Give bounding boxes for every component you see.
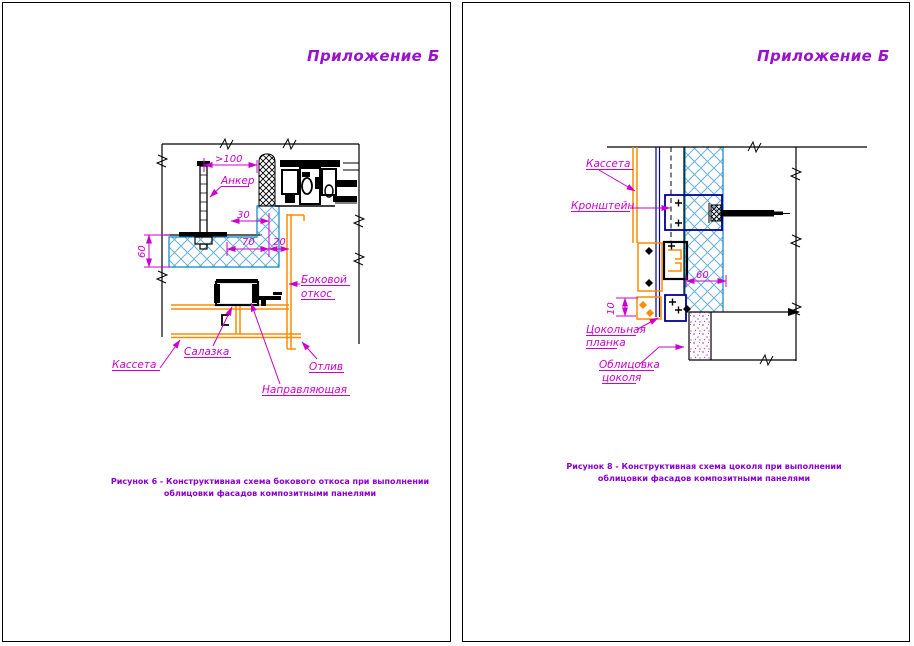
label-bracket: Кронштейн [571, 200, 634, 212]
dim-100: >100 [215, 154, 242, 165]
label-plinth-cladding-1: Облицовка [599, 359, 660, 371]
bracket-assembly [214, 279, 282, 325]
detail-drawing-side-reveal: >100 30 70 20 60 Анкер Боковой откос Кас… [104, 129, 406, 421]
label-rail: Направляющая [262, 384, 347, 396]
dim-60: 60 [137, 245, 148, 258]
label-slide: Салазка [184, 346, 229, 358]
dim-70: 70 [242, 237, 255, 248]
appendix-title-left: Приложение Б [307, 47, 440, 65]
figure-caption-right: Рисунок 8 - Конструктивная схема цоколя … [499, 461, 909, 485]
cassette-profiles [633, 147, 681, 319]
label-cassette: Кассета [586, 158, 630, 170]
dim-30: 30 [237, 210, 250, 221]
cad-viewer-canvas: { "document": { "type": "CAD drawing she… [0, 0, 914, 646]
wall-lines [607, 147, 867, 361]
detail-drawing-plinth: 60 10 Кассета Кронштейн Цокольная планка… [567, 139, 879, 397]
appendix-title-right: Приложение Б [757, 47, 890, 65]
label-plinth-strip-2: планка [586, 337, 626, 349]
label-drip: Отлив [309, 361, 343, 373]
sheet-right: Приложение Б [462, 2, 910, 642]
anchor-bolt [709, 203, 790, 223]
label-cassette: Кассета [112, 359, 156, 371]
break-symbols [748, 142, 801, 365]
anchor-bolt [179, 161, 227, 249]
dim-60: 60 [696, 270, 709, 281]
sealing-block-hatch [259, 154, 275, 206]
label-plinth-cladding-2: цоколя [602, 372, 641, 384]
label-side-reveal-2: откос [301, 288, 332, 300]
window-frame-profile [275, 160, 359, 206]
figure-caption-left: Рисунок 6 - Конструктивная схема боковог… [65, 476, 475, 500]
plinth-cladding-hatch [690, 313, 711, 360]
label-anchor: Анкер [220, 175, 255, 187]
dim-10: 10 [606, 302, 617, 315]
sheet-left: Приложение Б [2, 2, 451, 642]
label-plinth-strip-1: Цокольная [586, 324, 646, 336]
dim-20: 20 [273, 237, 286, 248]
label-side-reveal-1: Боковой [301, 274, 347, 286]
